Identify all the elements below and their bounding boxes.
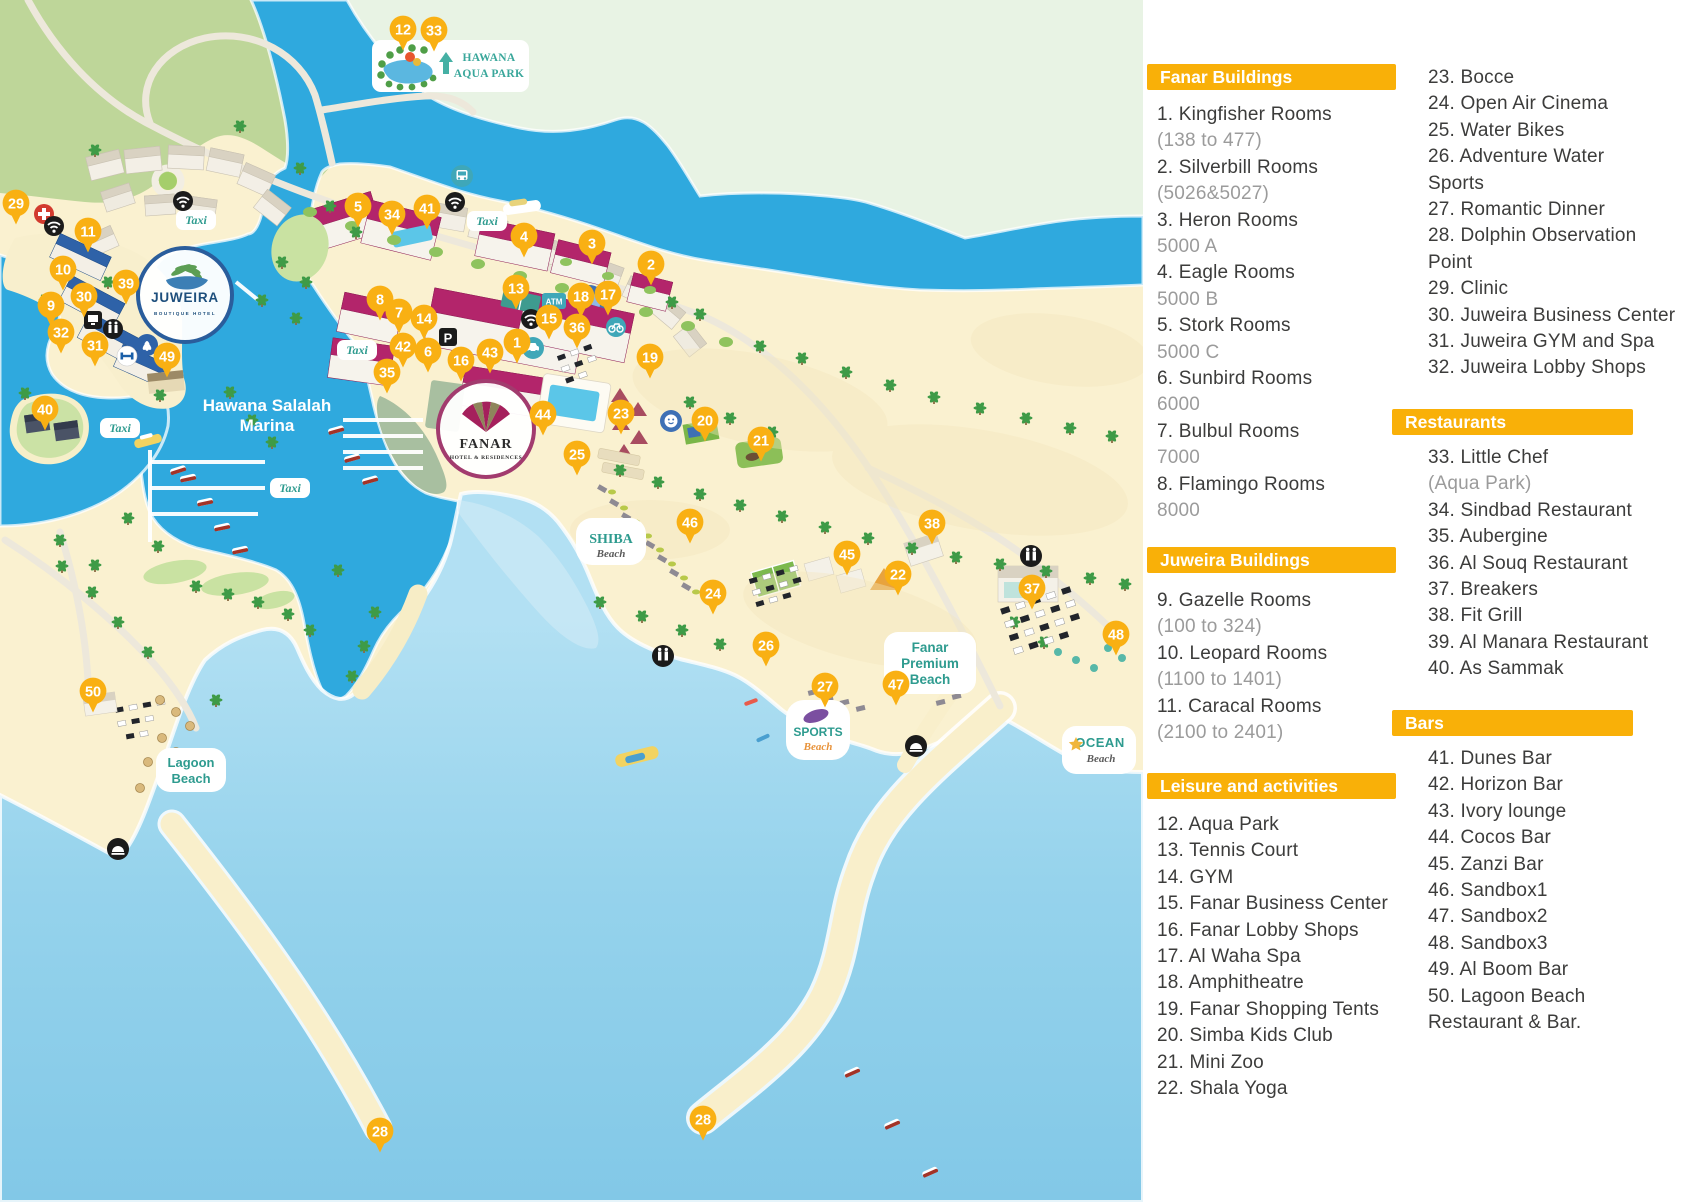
svg-text:49: 49 bbox=[159, 350, 175, 366]
svg-text:24: 24 bbox=[705, 587, 721, 603]
svg-text:5: 5 bbox=[354, 200, 362, 216]
svg-text:1: 1 bbox=[513, 336, 521, 352]
svg-text:23: 23 bbox=[613, 407, 629, 423]
svg-text:SPORTS: SPORTS bbox=[793, 725, 842, 739]
svg-text:3: 3 bbox=[588, 237, 596, 253]
svg-text:11: 11 bbox=[80, 225, 95, 241]
svg-text:28: 28 bbox=[695, 1113, 711, 1129]
svg-text:20: 20 bbox=[697, 414, 713, 430]
svg-text:27: 27 bbox=[817, 680, 833, 696]
svg-text:FANAR: FANAR bbox=[460, 437, 513, 452]
svg-text:6: 6 bbox=[424, 345, 432, 361]
svg-text:4: 4 bbox=[520, 230, 528, 246]
svg-text:15: 15 bbox=[541, 312, 557, 328]
svg-text:Taxi: Taxi bbox=[279, 481, 301, 495]
svg-text:Taxi: Taxi bbox=[346, 343, 368, 357]
svg-text:HOTEL & RESIDENCES: HOTEL & RESIDENCES bbox=[450, 455, 523, 461]
svg-text:29: 29 bbox=[8, 197, 24, 213]
svg-text:18: 18 bbox=[573, 290, 589, 306]
svg-text:26: 26 bbox=[758, 639, 774, 655]
svg-text:Beach: Beach bbox=[803, 741, 833, 753]
svg-text:36: 36 bbox=[569, 321, 585, 337]
svg-text:34: 34 bbox=[384, 208, 400, 224]
svg-text:22: 22 bbox=[890, 568, 906, 584]
svg-text:AQUA PARK: AQUA PARK bbox=[454, 68, 525, 80]
svg-text:48: 48 bbox=[1108, 628, 1124, 644]
svg-text:Marina: Marina bbox=[240, 416, 295, 435]
svg-text:50: 50 bbox=[85, 685, 101, 701]
svg-text:Taxi: Taxi bbox=[109, 421, 131, 435]
svg-text:21: 21 bbox=[753, 434, 769, 450]
svg-text:33: 33 bbox=[426, 24, 442, 40]
svg-text:30: 30 bbox=[76, 290, 92, 306]
svg-text:Beach: Beach bbox=[171, 771, 210, 786]
svg-text:40: 40 bbox=[37, 403, 53, 419]
svg-text:32: 32 bbox=[53, 326, 69, 342]
svg-text:38: 38 bbox=[924, 517, 940, 533]
svg-text:10: 10 bbox=[55, 263, 71, 279]
svg-text:Taxi: Taxi bbox=[185, 213, 207, 227]
svg-text:9: 9 bbox=[47, 299, 55, 315]
svg-text:Beach: Beach bbox=[1086, 753, 1116, 765]
svg-text:19: 19 bbox=[642, 351, 658, 367]
svg-text:44: 44 bbox=[535, 408, 551, 424]
svg-text:SHIBA: SHIBA bbox=[589, 532, 633, 547]
svg-text:16: 16 bbox=[453, 354, 469, 370]
svg-text:Beach: Beach bbox=[910, 672, 951, 687]
svg-text:31: 31 bbox=[87, 339, 103, 355]
svg-text:2: 2 bbox=[647, 258, 655, 274]
svg-text:45: 45 bbox=[839, 548, 855, 564]
svg-text:BOUTIQUE HOTEL: BOUTIQUE HOTEL bbox=[154, 311, 216, 316]
svg-text:HAWANA: HAWANA bbox=[463, 52, 516, 64]
svg-text:35: 35 bbox=[379, 366, 395, 382]
svg-text:Taxi: Taxi bbox=[476, 214, 498, 228]
svg-text:7: 7 bbox=[395, 306, 403, 322]
svg-text:42: 42 bbox=[395, 340, 411, 356]
svg-text:Fanar: Fanar bbox=[912, 640, 950, 655]
svg-text:P: P bbox=[444, 331, 453, 346]
svg-text:Beach: Beach bbox=[596, 548, 626, 560]
svg-text:41: 41 bbox=[419, 202, 435, 218]
svg-text:Lagoon: Lagoon bbox=[168, 755, 215, 770]
svg-text:37: 37 bbox=[1024, 582, 1040, 598]
svg-text:47: 47 bbox=[888, 678, 904, 694]
svg-text:Hawana Salalah: Hawana Salalah bbox=[203, 396, 332, 415]
svg-text:13: 13 bbox=[508, 282, 524, 298]
svg-text:8: 8 bbox=[376, 293, 384, 309]
svg-text:14: 14 bbox=[416, 312, 432, 328]
svg-text:46: 46 bbox=[682, 516, 698, 532]
svg-text:25: 25 bbox=[569, 448, 585, 464]
svg-text:JUWEIRA: JUWEIRA bbox=[151, 290, 219, 305]
svg-text:28: 28 bbox=[372, 1125, 388, 1141]
svg-text:43: 43 bbox=[482, 346, 498, 362]
svg-text:17: 17 bbox=[600, 288, 616, 304]
svg-text:12: 12 bbox=[395, 23, 411, 39]
svg-text:Premium: Premium bbox=[901, 656, 959, 671]
svg-text:39: 39 bbox=[118, 277, 134, 293]
